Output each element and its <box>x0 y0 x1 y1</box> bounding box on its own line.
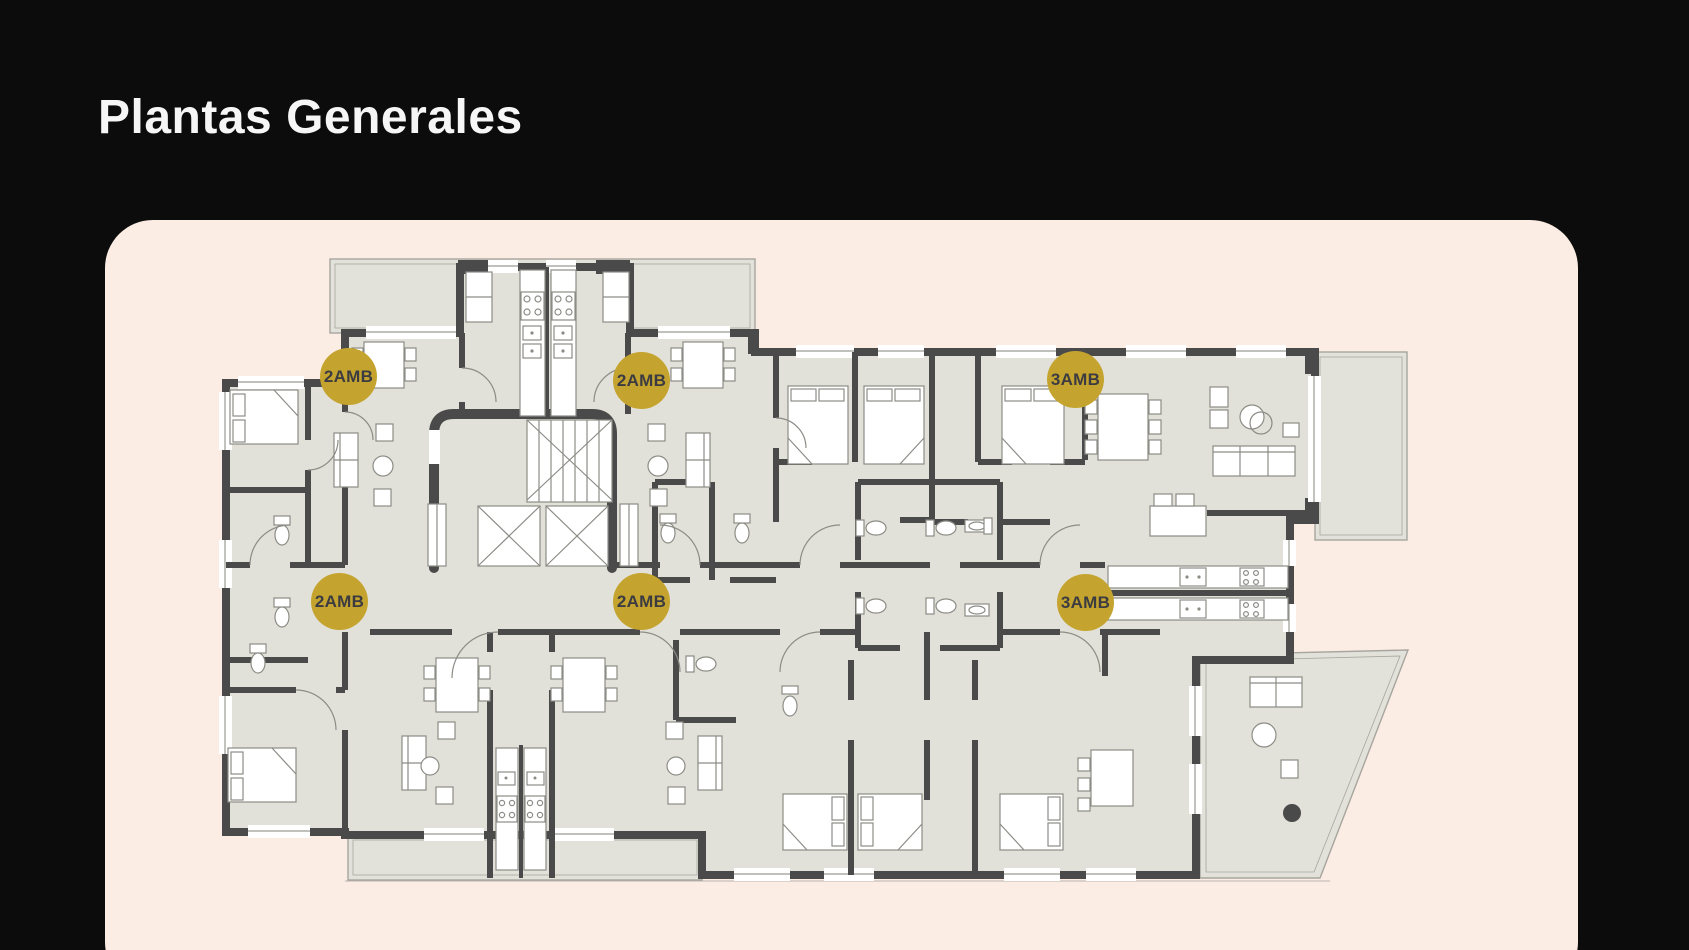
toilet <box>984 518 992 534</box>
toilet <box>660 514 676 543</box>
slide: Plantas Generales <box>0 0 1689 950</box>
bed <box>1000 794 1063 850</box>
bed <box>858 794 922 850</box>
bed <box>788 386 848 464</box>
dining-table <box>1085 394 1161 460</box>
toilet <box>734 514 750 543</box>
sofa <box>1213 446 1295 476</box>
sofa <box>686 433 710 487</box>
toilet <box>856 520 886 536</box>
sofa <box>1250 677 1302 707</box>
dining-table <box>1078 750 1133 811</box>
toilet <box>782 686 798 716</box>
bed <box>228 748 296 802</box>
toilet <box>926 520 956 536</box>
toilet <box>926 598 956 614</box>
sofa <box>698 736 722 790</box>
unit-badge: 2AMB <box>613 573 670 630</box>
unit-badge: 3AMB <box>1047 351 1104 408</box>
unit-badge: 2AMB <box>320 348 377 405</box>
toilet <box>274 598 290 627</box>
unit-badge: 2AMB <box>311 573 368 630</box>
toilet <box>856 598 886 614</box>
toilet <box>686 656 716 672</box>
stairs <box>527 420 612 502</box>
bed <box>864 386 924 464</box>
sink <box>965 604 989 616</box>
unit-badge: 2AMB <box>613 352 670 409</box>
toilet <box>274 516 290 545</box>
floor-plan-svg <box>0 0 1689 950</box>
toilet <box>250 644 266 673</box>
unit-badge: 3AMB <box>1057 574 1114 631</box>
bed <box>783 794 847 850</box>
bed <box>230 390 298 444</box>
